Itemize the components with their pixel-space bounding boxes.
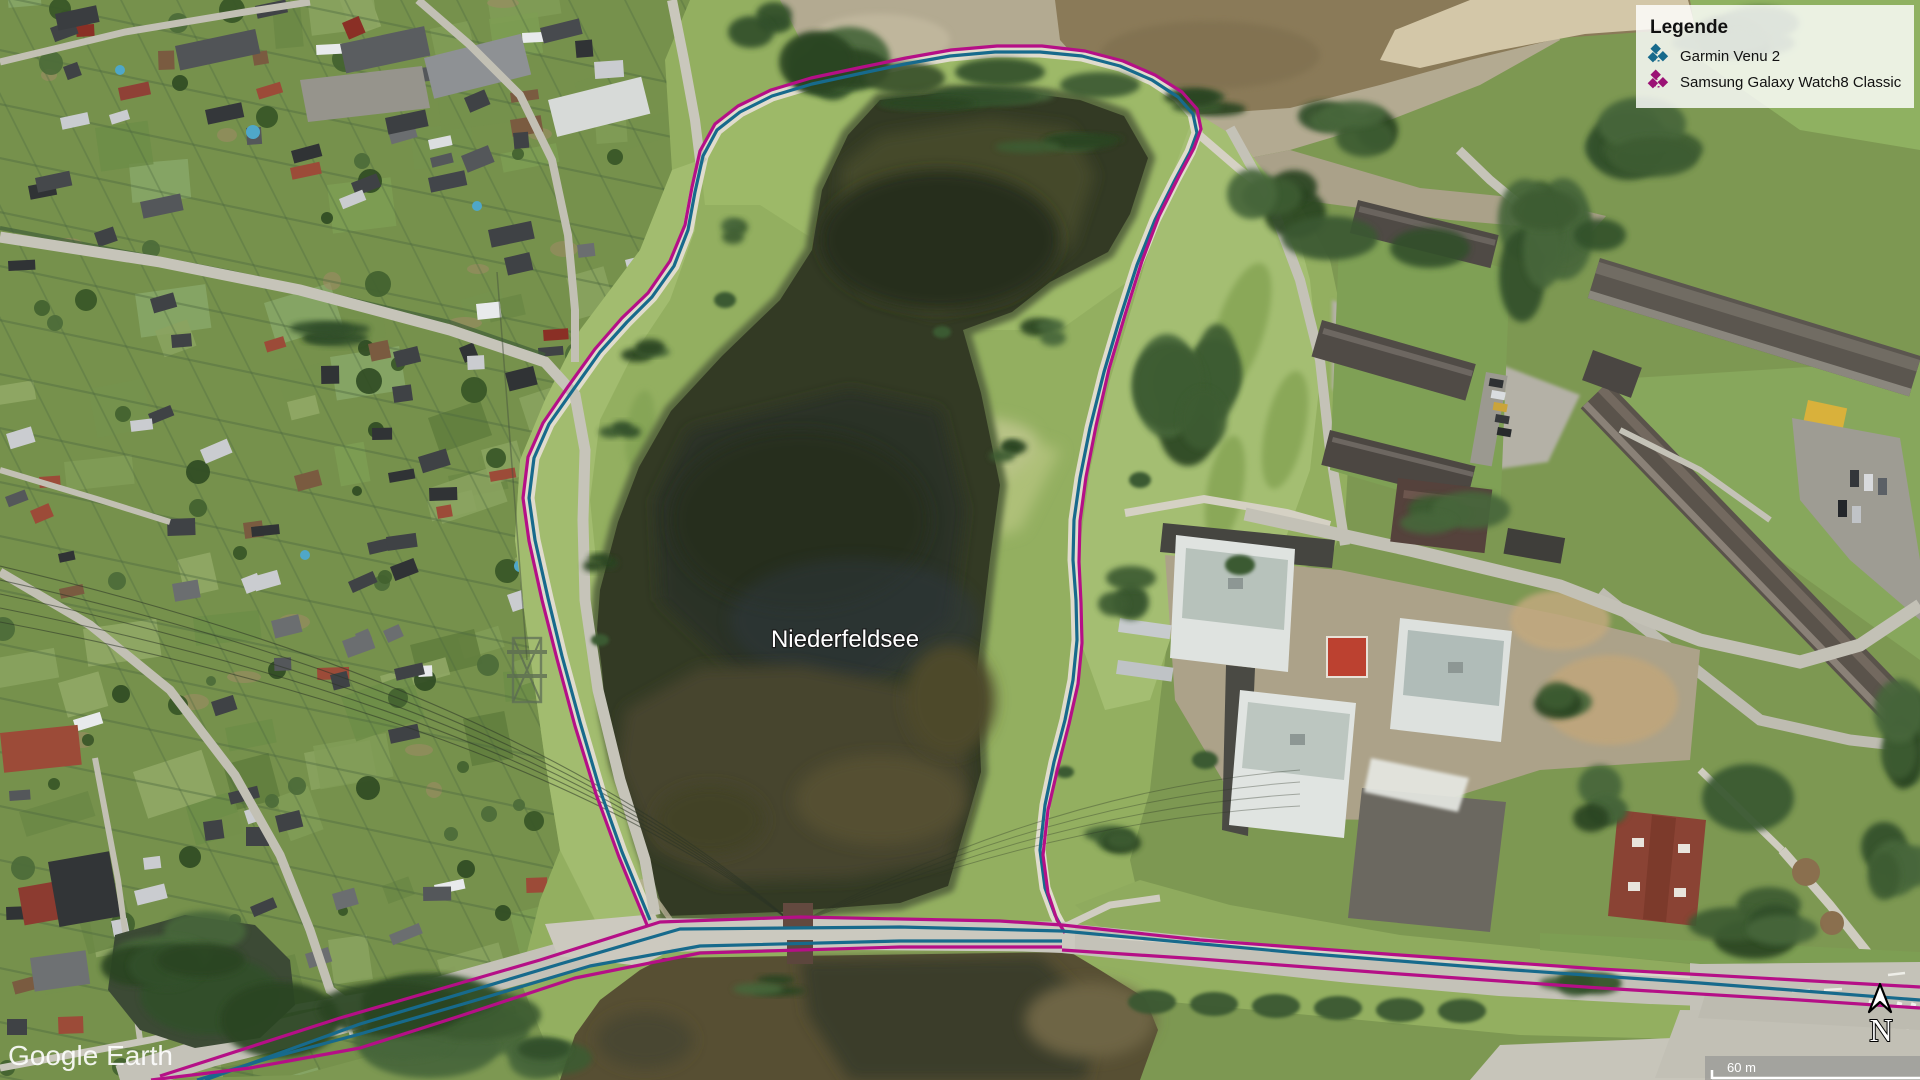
svg-text:Niederfeldsee: Niederfeldsee bbox=[771, 626, 919, 653]
svg-text:Samsung Galaxy Watch8 Classic: Samsung Galaxy Watch8 Classic bbox=[1680, 74, 1902, 91]
svg-text:Google Earth: Google Earth bbox=[8, 1040, 173, 1071]
svg-text:Legende: Legende bbox=[1650, 17, 1728, 38]
svg-text:Garmin Venu 2: Garmin Venu 2 bbox=[1680, 48, 1780, 65]
svg-text:N: N bbox=[1869, 1012, 1892, 1048]
svg-text:60 m: 60 m bbox=[1727, 1060, 1756, 1075]
